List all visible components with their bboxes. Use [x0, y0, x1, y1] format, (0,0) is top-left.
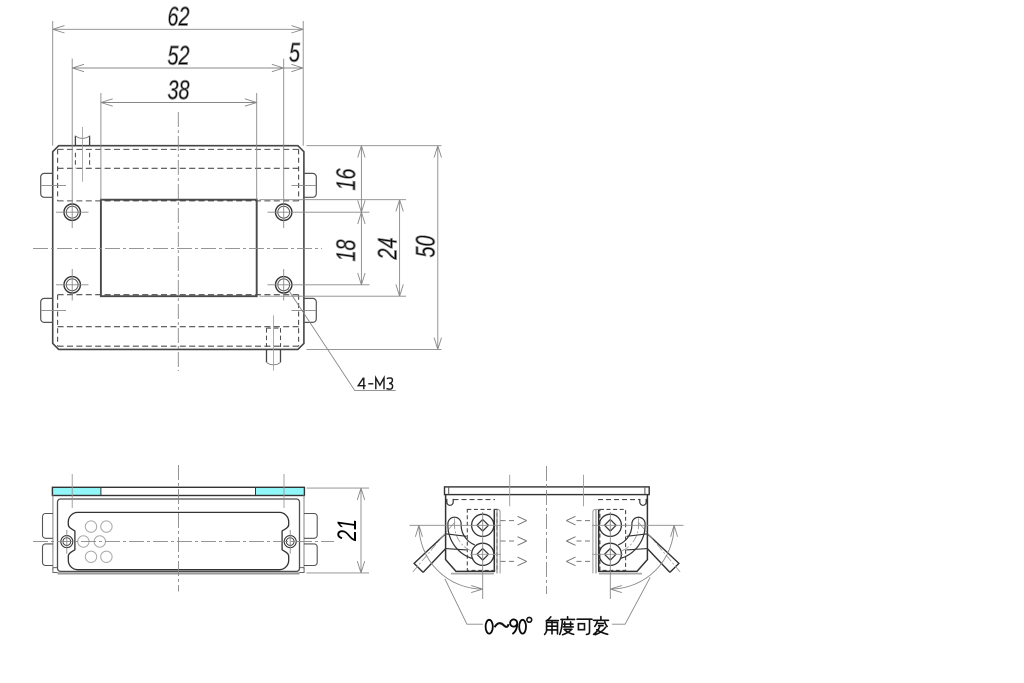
svg-text:5: 5 [289, 38, 301, 68]
svg-text:24: 24 [373, 238, 403, 261]
svg-text:52: 52 [168, 41, 190, 71]
svg-text:50: 50 [411, 236, 441, 258]
svg-text:38: 38 [168, 75, 190, 105]
svg-text:62: 62 [168, 2, 190, 32]
svg-text:16: 16 [331, 168, 361, 191]
svg-text:18: 18 [331, 240, 361, 262]
svg-text:21: 21 [332, 519, 362, 542]
